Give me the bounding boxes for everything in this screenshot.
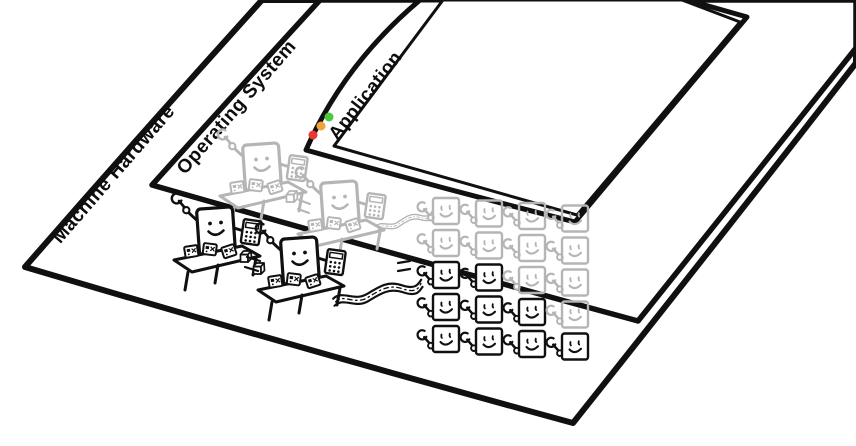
- cube-box-icon: [241, 251, 252, 262]
- cube-box-icon: [254, 263, 265, 274]
- layers-diagram: Machine Hardware Operating System Applic…: [0, 0, 856, 446]
- traffic-light-close-icon: [309, 131, 318, 140]
- cube-box-icon: [287, 191, 298, 202]
